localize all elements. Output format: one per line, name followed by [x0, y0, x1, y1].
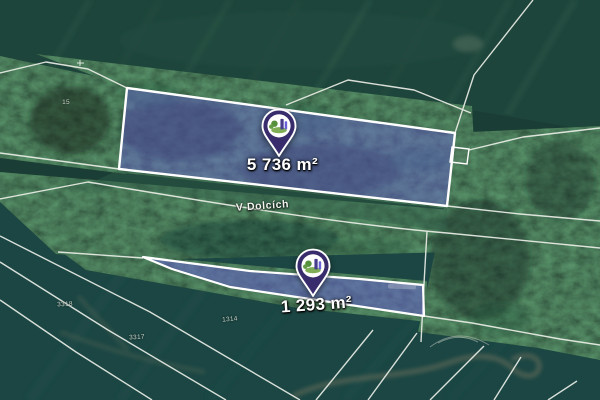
parcel-pin-small[interactable]	[294, 248, 332, 297]
parcel-pin-large[interactable]	[260, 108, 298, 157]
map-canvas[interactable]: 15 3318 3317 1314 V Dolcích 5 736 m²	[0, 0, 600, 400]
pin-icon	[294, 248, 332, 297]
area-label-large: 5 736 m²	[200, 155, 365, 175]
parcel-notch-polygon	[450, 147, 469, 164]
pin-icon	[260, 108, 298, 157]
map-watermark-smudge	[388, 284, 416, 290]
parcel-number-label: 15	[58, 99, 74, 106]
